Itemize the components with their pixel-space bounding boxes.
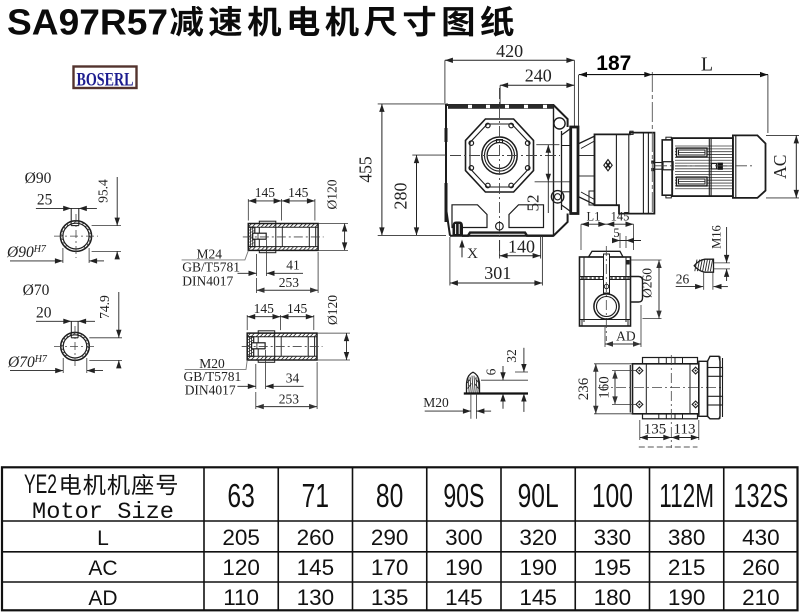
svg-text:26: 26 (676, 272, 690, 287)
svg-text:145: 145 (255, 185, 276, 200)
svg-text:145: 145 (519, 585, 557, 610)
svg-text:145: 145 (254, 301, 275, 316)
svg-text:160: 160 (597, 376, 613, 399)
svg-text:145: 145 (297, 555, 335, 580)
svg-text:Motor Size: Motor Size (32, 499, 174, 525)
svg-text:420: 420 (496, 41, 523, 61)
svg-text:71: 71 (302, 477, 329, 514)
svg-text:L: L (701, 54, 713, 76)
svg-text:253: 253 (279, 391, 300, 406)
svg-text:455: 455 (356, 156, 376, 183)
svg-text:M20: M20 (423, 395, 449, 410)
svg-text:L: L (97, 527, 109, 550)
svg-text:195: 195 (594, 555, 632, 580)
svg-text:52: 52 (524, 195, 543, 212)
svg-text:AC: AC (88, 557, 117, 580)
svg-text:140: 140 (508, 237, 535, 257)
svg-text:190: 190 (519, 555, 557, 580)
svg-text:95.4: 95.4 (96, 179, 111, 203)
svg-text:135: 135 (371, 585, 409, 610)
svg-text:260: 260 (297, 525, 335, 550)
svg-text:190: 190 (445, 555, 483, 580)
svg-text:170: 170 (371, 555, 409, 580)
svg-text:90S: 90S (443, 477, 484, 514)
svg-text:260: 260 (742, 555, 780, 580)
svg-text:135: 135 (644, 422, 667, 438)
svg-text:240: 240 (525, 66, 552, 86)
svg-text:32: 32 (504, 349, 519, 363)
svg-text:253: 253 (279, 275, 300, 290)
svg-text:320: 320 (519, 525, 557, 550)
svg-text:187: 187 (596, 52, 631, 75)
svg-text:236: 236 (576, 377, 592, 400)
svg-text:GB/T5781: GB/T5781 (182, 260, 240, 275)
svg-text:190: 190 (668, 585, 706, 610)
svg-text:430: 430 (742, 525, 780, 550)
svg-text:AD: AD (88, 587, 117, 610)
svg-text:DIN4017: DIN4017 (182, 274, 233, 289)
svg-text:300: 300 (445, 525, 483, 550)
svg-text:130: 130 (297, 585, 335, 610)
svg-text:Ø120: Ø120 (325, 295, 340, 325)
svg-text:290: 290 (371, 525, 409, 550)
svg-text:210: 210 (742, 585, 780, 610)
svg-text:380: 380 (668, 525, 706, 550)
svg-text:Ø120: Ø120 (325, 179, 340, 209)
svg-text:34: 34 (286, 371, 300, 386)
svg-text:41: 41 (286, 258, 300, 273)
svg-text:145: 145 (445, 585, 483, 610)
svg-text:L1: L1 (587, 210, 601, 224)
svg-text:180: 180 (594, 585, 632, 610)
svg-text:Ø90: Ø90 (25, 170, 52, 187)
svg-text:YE2: YE2 (24, 469, 57, 499)
svg-text:301: 301 (484, 263, 511, 283)
svg-text:X: X (467, 246, 478, 262)
svg-text:DIN4017: DIN4017 (185, 383, 236, 398)
svg-text:205: 205 (222, 525, 260, 550)
svg-text:63: 63 (227, 477, 254, 514)
svg-text:100: 100 (592, 477, 633, 514)
svg-text:132S: 132S (733, 477, 788, 514)
svg-text:330: 330 (594, 525, 632, 550)
svg-text:145: 145 (288, 185, 309, 200)
svg-text:280: 280 (391, 183, 411, 210)
svg-text:90L: 90L (518, 477, 559, 514)
svg-text:M16: M16 (710, 225, 724, 249)
svg-text:145: 145 (287, 301, 308, 316)
svg-text:113: 113 (674, 422, 696, 438)
svg-text:120: 120 (222, 555, 260, 580)
svg-text:20: 20 (36, 304, 52, 321)
svg-text:145: 145 (611, 210, 630, 224)
svg-text:80: 80 (376, 477, 403, 514)
svg-text:Ø70: Ø70 (23, 282, 50, 299)
svg-text:215: 215 (668, 555, 706, 580)
svg-text:112M: 112M (659, 477, 714, 514)
svg-text:110: 110 (223, 585, 259, 610)
svg-text:Ø260: Ø260 (640, 268, 655, 298)
svg-text:AC: AC (770, 155, 790, 179)
svg-text:AD: AD (616, 329, 636, 344)
svg-text:5: 5 (613, 226, 619, 240)
svg-text:25: 25 (37, 192, 53, 209)
svg-text:BOSERL: BOSERL (77, 70, 134, 91)
svg-text:6: 6 (484, 368, 499, 375)
svg-text:74.9: 74.9 (97, 295, 112, 319)
svg-text:SA97R57: SA97R57 (7, 2, 168, 43)
